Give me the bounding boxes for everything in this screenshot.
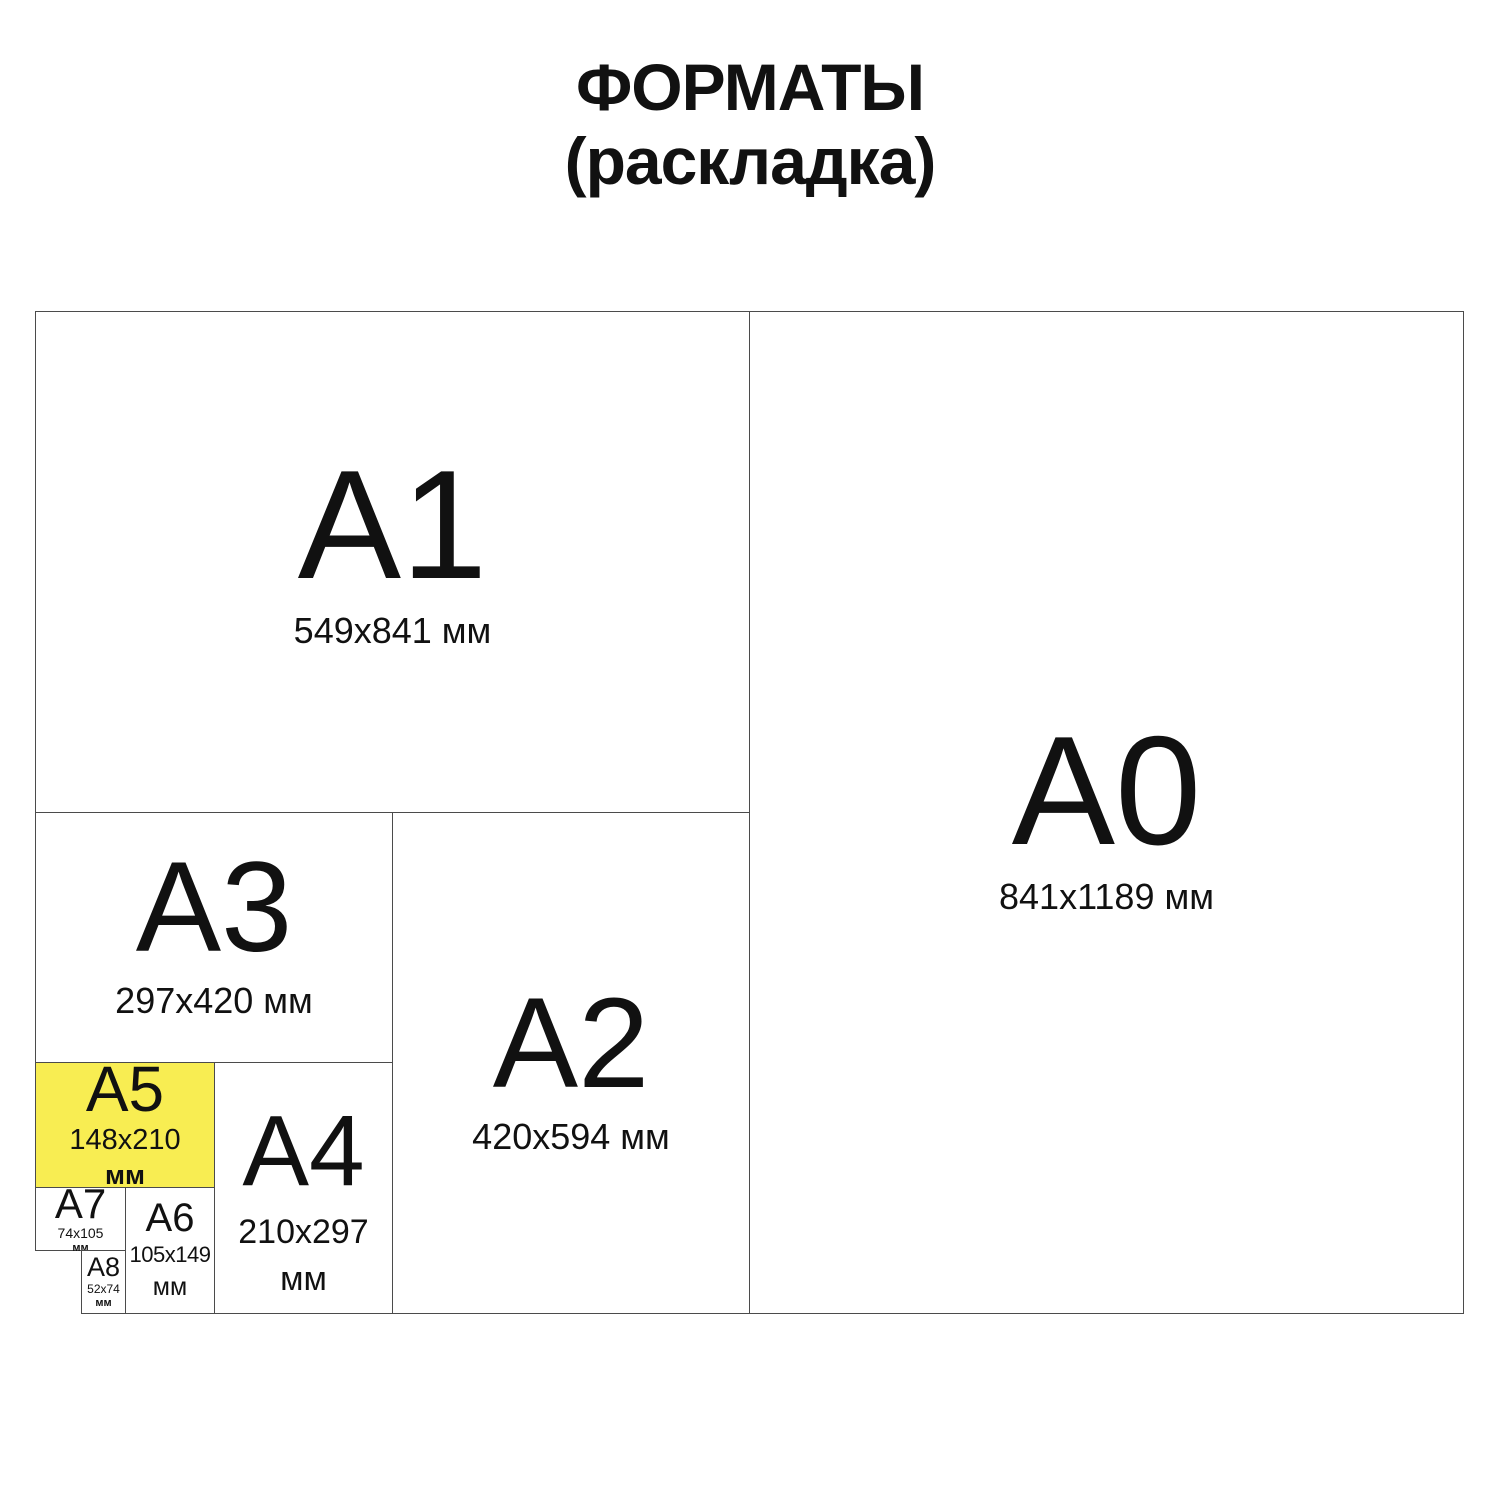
format-label-a4: A4 bbox=[242, 1101, 364, 1201]
diagram-title: ФОРМАТЫ (раскладка) bbox=[0, 50, 1500, 198]
format-label-a6: A6 bbox=[146, 1199, 195, 1237]
format-label-a8: A8 bbox=[87, 1255, 120, 1281]
format-box-a2: A2 420x594 мм bbox=[392, 812, 750, 1314]
format-box-a1: A1 549x841 мм bbox=[35, 311, 750, 813]
format-a5-text: A5 148x210 мм bbox=[69, 1059, 180, 1191]
format-dims-a7: 74x105 bbox=[58, 1225, 104, 1241]
format-box-a6: A6 105x149 мм bbox=[125, 1187, 215, 1314]
format-box-a0: A0 841x1189 мм bbox=[749, 311, 1464, 1314]
format-label-a5: A5 bbox=[86, 1059, 164, 1120]
format-dims-a6: 105x149 bbox=[130, 1242, 211, 1268]
format-dims-a1: 549x841 мм bbox=[294, 610, 492, 652]
format-label-a1: A1 bbox=[298, 447, 488, 602]
format-a6-text: A6 105x149 мм bbox=[130, 1199, 211, 1302]
format-a2-text: A2 420x594 мм bbox=[472, 980, 670, 1158]
format-box-a7: A7 74x105 мм bbox=[35, 1187, 126, 1251]
format-a7-text: A7 74x105 мм bbox=[55, 1184, 106, 1255]
diagram-title-line2: (раскладка) bbox=[0, 124, 1500, 198]
format-label-a2: A2 bbox=[493, 980, 650, 1108]
format-label-a3: A3 bbox=[136, 844, 293, 972]
format-box-a8: A8 52x74 мм bbox=[81, 1250, 126, 1314]
format-dims-a8: 52x74 bbox=[87, 1282, 120, 1296]
diagram-title-line1: ФОРМАТЫ bbox=[0, 50, 1500, 124]
format-box-a3: A3 297x420 мм bbox=[35, 812, 393, 1063]
format-unit-a6: мм bbox=[153, 1273, 187, 1302]
format-a3-text: A3 297x420 мм bbox=[115, 844, 313, 1022]
format-a8-text: A8 52x74 мм bbox=[87, 1255, 120, 1309]
format-a1-text: A1 549x841 мм bbox=[294, 447, 492, 652]
format-box-a4: A4 210x297 мм bbox=[214, 1062, 393, 1314]
format-dims-a3: 297x420 мм bbox=[115, 980, 313, 1022]
paper-formats-layout: A1 549x841 мм A0 841x1189 мм A3 297x420 … bbox=[35, 311, 1464, 1314]
format-dims-a4: 210x297 bbox=[238, 1213, 368, 1252]
format-label-a7: A7 bbox=[55, 1184, 106, 1224]
format-dims-a5: 148x210 bbox=[69, 1124, 180, 1157]
format-box-a5-highlighted: A5 148x210 мм bbox=[35, 1062, 215, 1188]
format-a4-text: A4 210x297 мм bbox=[238, 1101, 368, 1299]
format-unit-a8: мм bbox=[95, 1297, 111, 1309]
format-unit-a4: мм bbox=[280, 1260, 327, 1299]
format-label-a0: A0 bbox=[1012, 713, 1202, 868]
format-dims-a2: 420x594 мм bbox=[472, 1116, 670, 1158]
format-a0-text: A0 841x1189 мм bbox=[999, 713, 1214, 918]
format-dims-a0: 841x1189 мм bbox=[999, 876, 1214, 918]
